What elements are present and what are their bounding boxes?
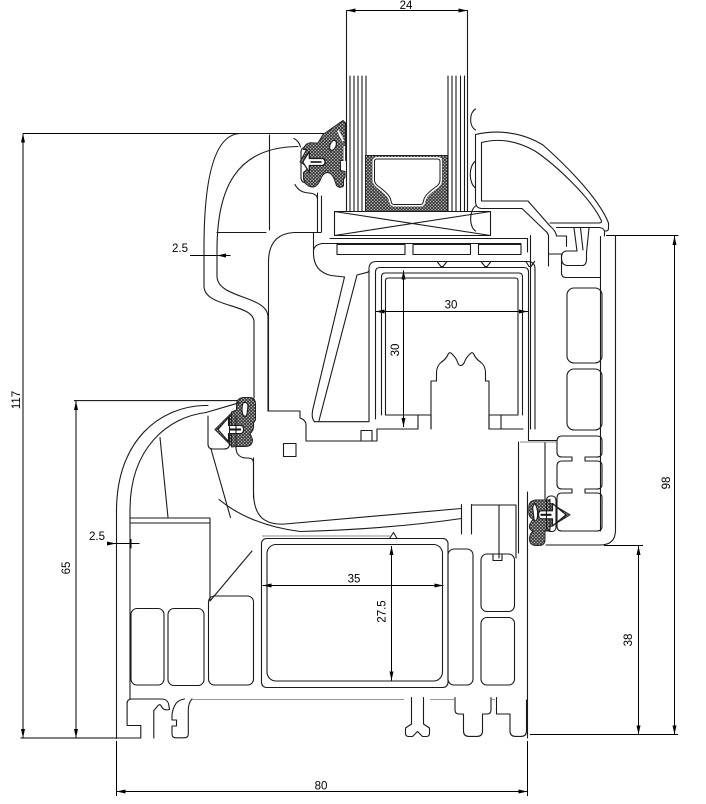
svg-text:38: 38 [623, 634, 635, 647]
svg-text:80: 80 [315, 781, 328, 793]
svg-text:65: 65 [61, 562, 73, 575]
svg-text:27.5: 27.5 [377, 600, 389, 622]
svg-text:35: 35 [348, 574, 361, 586]
svg-text:2.5: 2.5 [172, 243, 188, 255]
svg-text:2.5: 2.5 [89, 531, 105, 543]
svg-text:98: 98 [661, 477, 673, 490]
svg-text:24: 24 [400, 0, 413, 12]
svg-text:117: 117 [11, 391, 23, 409]
svg-text:30: 30 [445, 300, 458, 312]
svg-text:30: 30 [390, 344, 402, 357]
